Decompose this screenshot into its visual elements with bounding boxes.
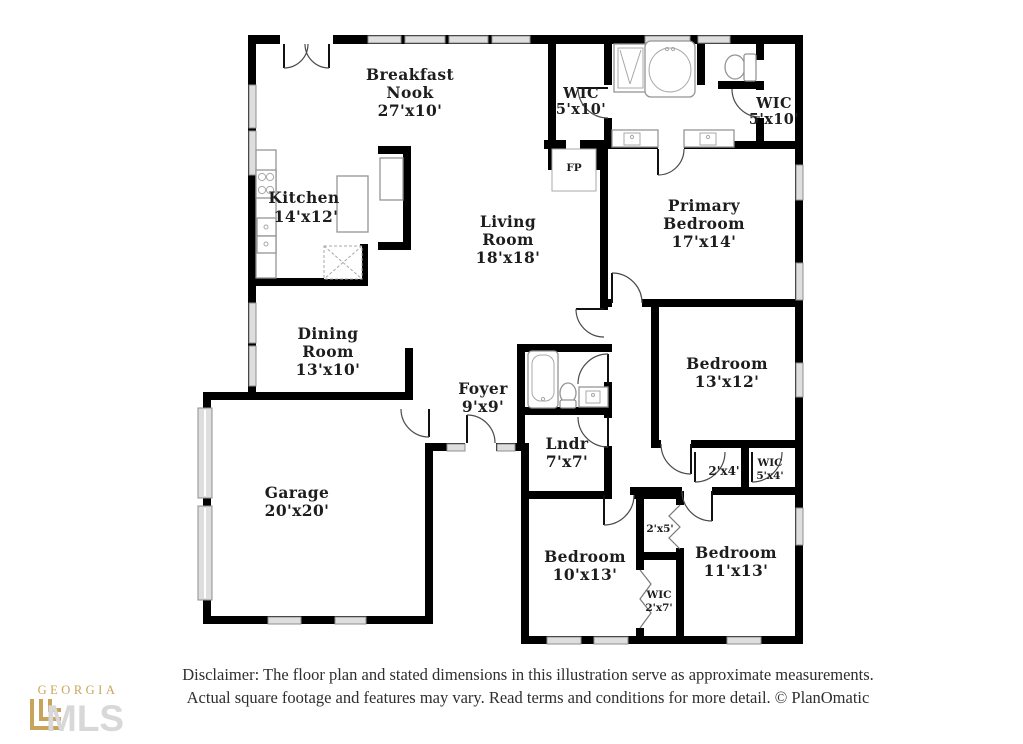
room-label-wic-5x4: WIC [756,457,782,469]
svg-text:2'x7': 2'x7' [645,602,672,614]
svg-text:5'x4': 5'x4' [756,470,783,482]
room-label-laundry: Lndr [546,434,589,453]
svg-text:Nook: Nook [386,83,433,102]
room-label-dining-room: Dining [298,324,359,343]
logo-georgia-text: GEORGIA [38,683,119,697]
svg-text:20'x20': 20'x20' [265,501,330,520]
svg-text:17'x14': 17'x14' [672,232,737,251]
room-label-breakfast-nook: Breakfast [366,65,455,84]
disclaimer-line-1: Disclaimer: The floor plan and stated di… [182,665,874,684]
room-label-foyer: Foyer [458,379,508,398]
svg-text:5'x10': 5'x10' [556,101,606,118]
svg-text:Room: Room [302,342,354,361]
svg-text:5'x10': 5'x10' [749,111,799,128]
room-label-bedroom-11x13: Bedroom [695,543,777,562]
svg-text:13'x12': 13'x12' [695,372,760,391]
disclaimer-line-2: Actual square footage and features may v… [187,688,870,707]
refrigerator [380,158,403,200]
room-label-wic-right: WIC [755,95,792,112]
svg-text:10'x13': 10'x13' [553,565,618,584]
footer: Disclaimer: The floor plan and stated di… [32,665,874,739]
primary-tub [645,41,695,97]
room-label-wic-left: WIC [562,85,599,102]
floor-plan-page: Breakfast Nook 27'x10' Kitchen 14'x12' L… [0,0,1023,744]
room-label-kitchen: Kitchen [268,188,339,207]
room-label-closet-2x4: 2'x4' [708,464,739,478]
hall-vanity [579,387,608,407]
kitchen-island [337,176,368,232]
svg-text:7'x7': 7'x7' [546,452,588,471]
room-label-garage: Garage [265,483,330,502]
svg-text:13'x10': 13'x10' [296,360,361,379]
svg-text:11'x13': 11'x13' [704,561,769,580]
svg-text:Room: Room [482,230,534,249]
room-label-closet-2x5: 2'x5' [646,523,673,535]
fireplace-label: FP [566,162,581,174]
svg-text:14'x12': 14'x12' [274,207,339,226]
primary-toilet [725,55,745,79]
room-label-bedroom-10x13: Bedroom [544,547,626,566]
svg-text:27'x10': 27'x10' [378,101,443,120]
svg-text:18'x18': 18'x18' [476,248,541,267]
room-label-living-room: Living [480,212,536,231]
shower [614,44,647,92]
svg-text:9'x9': 9'x9' [462,397,504,416]
room-label-bedroom-13x12: Bedroom [686,354,768,373]
room-label-primary-bedroom: Primary [668,196,741,215]
georgia-mls-logo: GEORGIA MLS [32,683,124,739]
logo-mls-text: MLS [46,698,124,739]
room-label-wic-2x7: WIC [645,589,671,601]
svg-text:Bedroom: Bedroom [663,214,745,233]
floor-plan-image: Breakfast Nook 27'x10' Kitchen 14'x12' L… [0,0,1023,744]
